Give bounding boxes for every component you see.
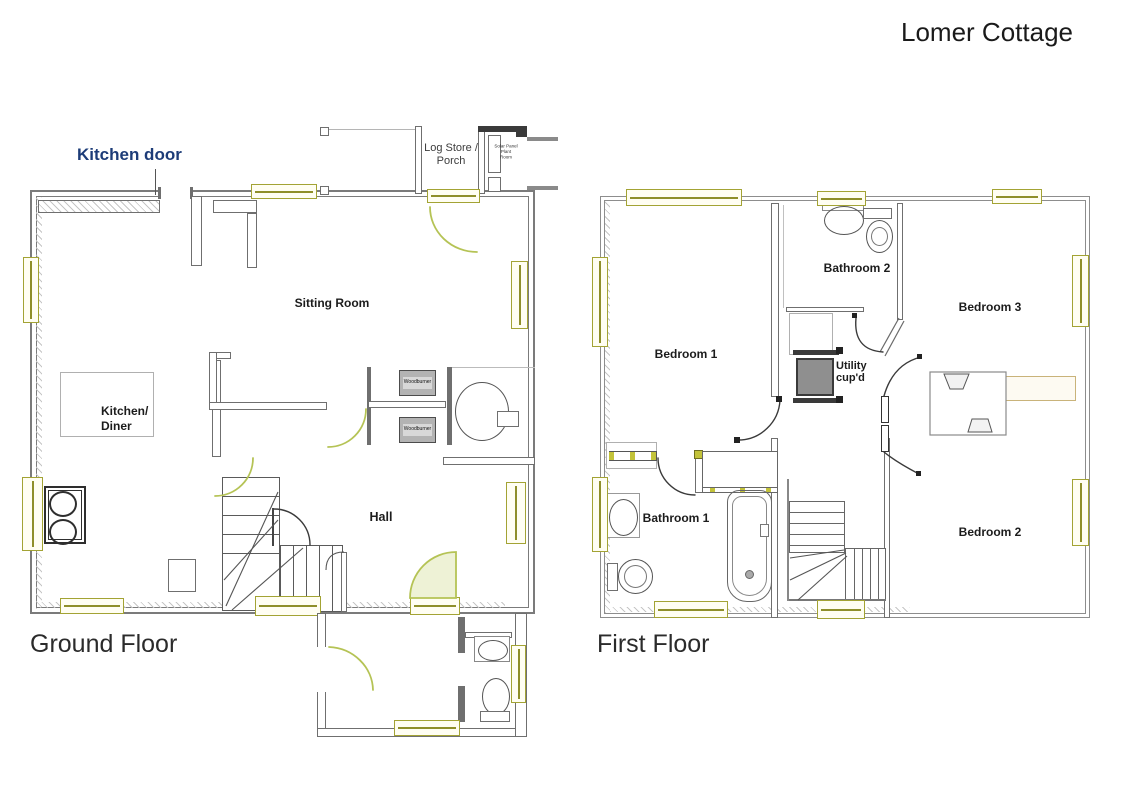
first-floor-plan xyxy=(0,0,1140,800)
toilet-cistern xyxy=(863,208,892,219)
door-leaf xyxy=(881,425,889,452)
airing-cupboard xyxy=(702,451,778,492)
bathroom2-wall xyxy=(786,307,864,312)
wall-line xyxy=(783,205,784,308)
bathtub-inner xyxy=(732,496,767,596)
stair-tread xyxy=(789,512,845,513)
stair-tread xyxy=(878,548,879,600)
door-leaf xyxy=(881,396,889,423)
window xyxy=(592,477,608,552)
bedroom1-wall xyxy=(771,203,779,397)
cupboard-front xyxy=(793,350,839,355)
stair-tread xyxy=(870,548,871,600)
log-store-label: Log Store / Porch xyxy=(403,142,499,169)
stair-tread xyxy=(789,523,845,524)
utility-cupboard-label: Utility cup'd xyxy=(836,361,886,384)
floorplan-canvas: Woodburner Woodburner xyxy=(0,0,1140,800)
bathroom1-label: Bathroom 1 xyxy=(626,511,726,526)
bedroom1-label: Bedroom 1 xyxy=(636,347,736,362)
ledge xyxy=(1004,376,1076,401)
stair-tread xyxy=(789,545,845,546)
kitchen-diner-label: Kitchen/ Diner xyxy=(101,404,171,433)
bath-drain xyxy=(745,570,754,579)
radiator-bracket xyxy=(651,452,656,460)
window xyxy=(817,191,866,206)
radiator-bracket xyxy=(609,452,614,460)
window xyxy=(592,257,608,347)
door-hinge xyxy=(836,347,843,354)
staircase xyxy=(845,548,886,600)
window xyxy=(626,189,742,206)
hall-label: Hall xyxy=(331,510,431,525)
toilet-bowl-inner xyxy=(871,227,888,246)
window xyxy=(992,189,1042,204)
page-title: Lomer Cottage xyxy=(901,17,1073,48)
bracket xyxy=(710,488,715,492)
shower-tray xyxy=(789,313,833,355)
door-hinge xyxy=(836,396,843,403)
sitting-room-label: Sitting Room xyxy=(272,296,392,311)
cupboard-front xyxy=(793,398,839,403)
window xyxy=(817,600,865,619)
radiator-bracket xyxy=(630,452,635,460)
utility-cupboard xyxy=(796,358,834,396)
window xyxy=(654,601,728,618)
ground-floor-title: Ground Floor xyxy=(30,630,177,659)
sink-basin xyxy=(824,206,864,235)
bathroom2-label: Bathroom 2 xyxy=(807,261,907,276)
bath-taps xyxy=(760,524,769,537)
chimney-hatching xyxy=(984,374,1004,434)
stair-tread xyxy=(862,548,863,600)
toilet-bowl-inner xyxy=(624,565,647,588)
stair-tread xyxy=(789,534,845,535)
bedroom2-label: Bedroom 2 xyxy=(940,525,1040,540)
window xyxy=(1072,255,1089,327)
window xyxy=(1072,479,1089,546)
stair-tread xyxy=(854,548,855,600)
first-floor-title: First Floor xyxy=(597,630,710,659)
solar-room-label: Solar Panel Plant Room xyxy=(488,144,524,160)
toilet-cistern xyxy=(607,563,618,591)
bedroom3-label: Bedroom 3 xyxy=(940,300,1040,315)
